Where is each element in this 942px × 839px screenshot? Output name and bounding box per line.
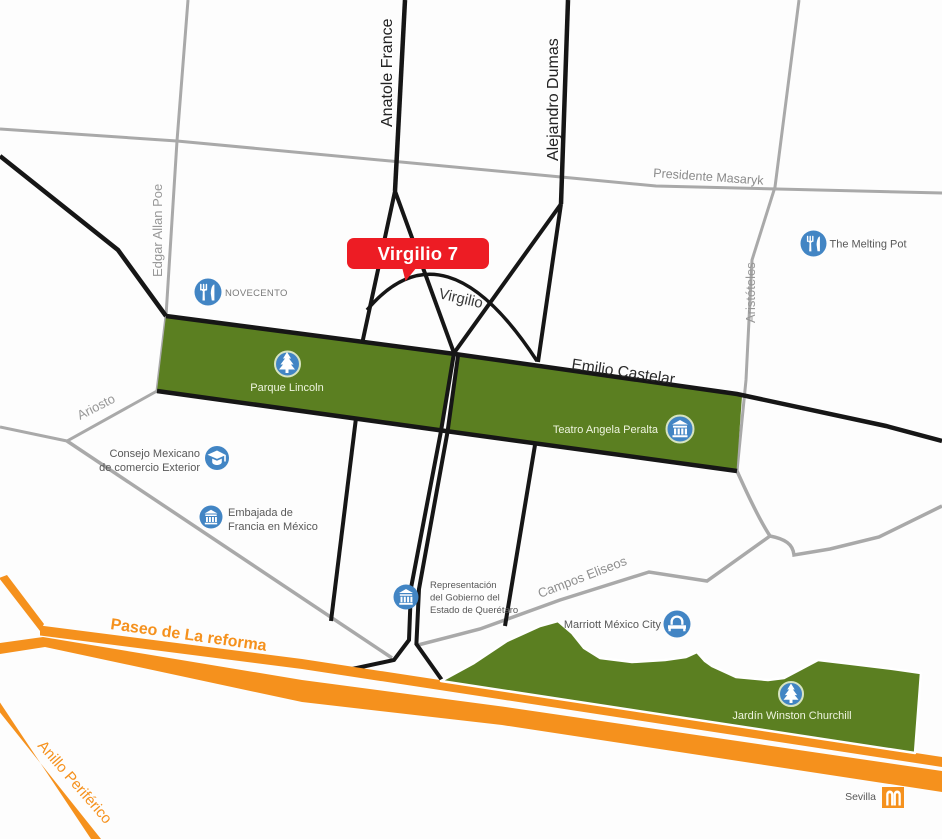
svg-text:Virgilio 7: Virgilio 7 — [378, 243, 459, 264]
svg-text:del Gobierno del: del Gobierno del — [430, 593, 500, 604]
svg-text:Teatro Angela Peralta: Teatro Angela Peralta — [553, 424, 659, 436]
svg-text:de comercio Exterior: de comercio Exterior — [99, 462, 200, 474]
svg-text:Aristóteles: Aristóteles — [743, 262, 758, 323]
svg-text:Edgar Allan Poe: Edgar Allan Poe — [150, 184, 165, 277]
svg-text:Anatole France: Anatole France — [379, 18, 396, 127]
svg-text:NOVECENTO: NOVECENTO — [225, 288, 288, 299]
svg-text:Alejandro Dumas: Alejandro Dumas — [545, 38, 562, 161]
svg-text:Marriott México City: Marriott México City — [564, 619, 662, 631]
svg-text:The Melting Pot: The Melting Pot — [830, 239, 907, 251]
svg-text:Consejo Mexicano: Consejo Mexicano — [110, 448, 201, 460]
svg-text:Embajada de: Embajada de — [228, 507, 293, 519]
svg-text:Parque Lincoln: Parque Lincoln — [250, 382, 323, 394]
svg-text:Jardín Winston Churchill: Jardín Winston Churchill — [732, 710, 851, 722]
svg-text:Francia en México: Francia en México — [228, 521, 318, 533]
svg-text:Sevilla: Sevilla — [845, 791, 876, 803]
svg-text:Estado de Querétaro: Estado de Querétaro — [430, 605, 518, 616]
svg-text:Representación: Representación — [430, 580, 497, 591]
